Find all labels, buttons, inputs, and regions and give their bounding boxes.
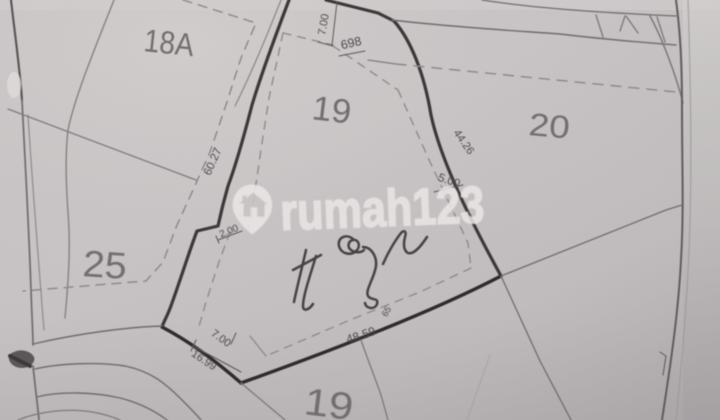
svg-text:18A: 18A xyxy=(142,22,196,63)
svg-text:19: 19 xyxy=(302,381,356,420)
svg-text:25: 25 xyxy=(81,243,128,287)
svg-text:19: 19 xyxy=(310,89,353,131)
svg-text:rumah123: rumah123 xyxy=(279,176,485,242)
svg-text:20: 20 xyxy=(527,106,571,145)
